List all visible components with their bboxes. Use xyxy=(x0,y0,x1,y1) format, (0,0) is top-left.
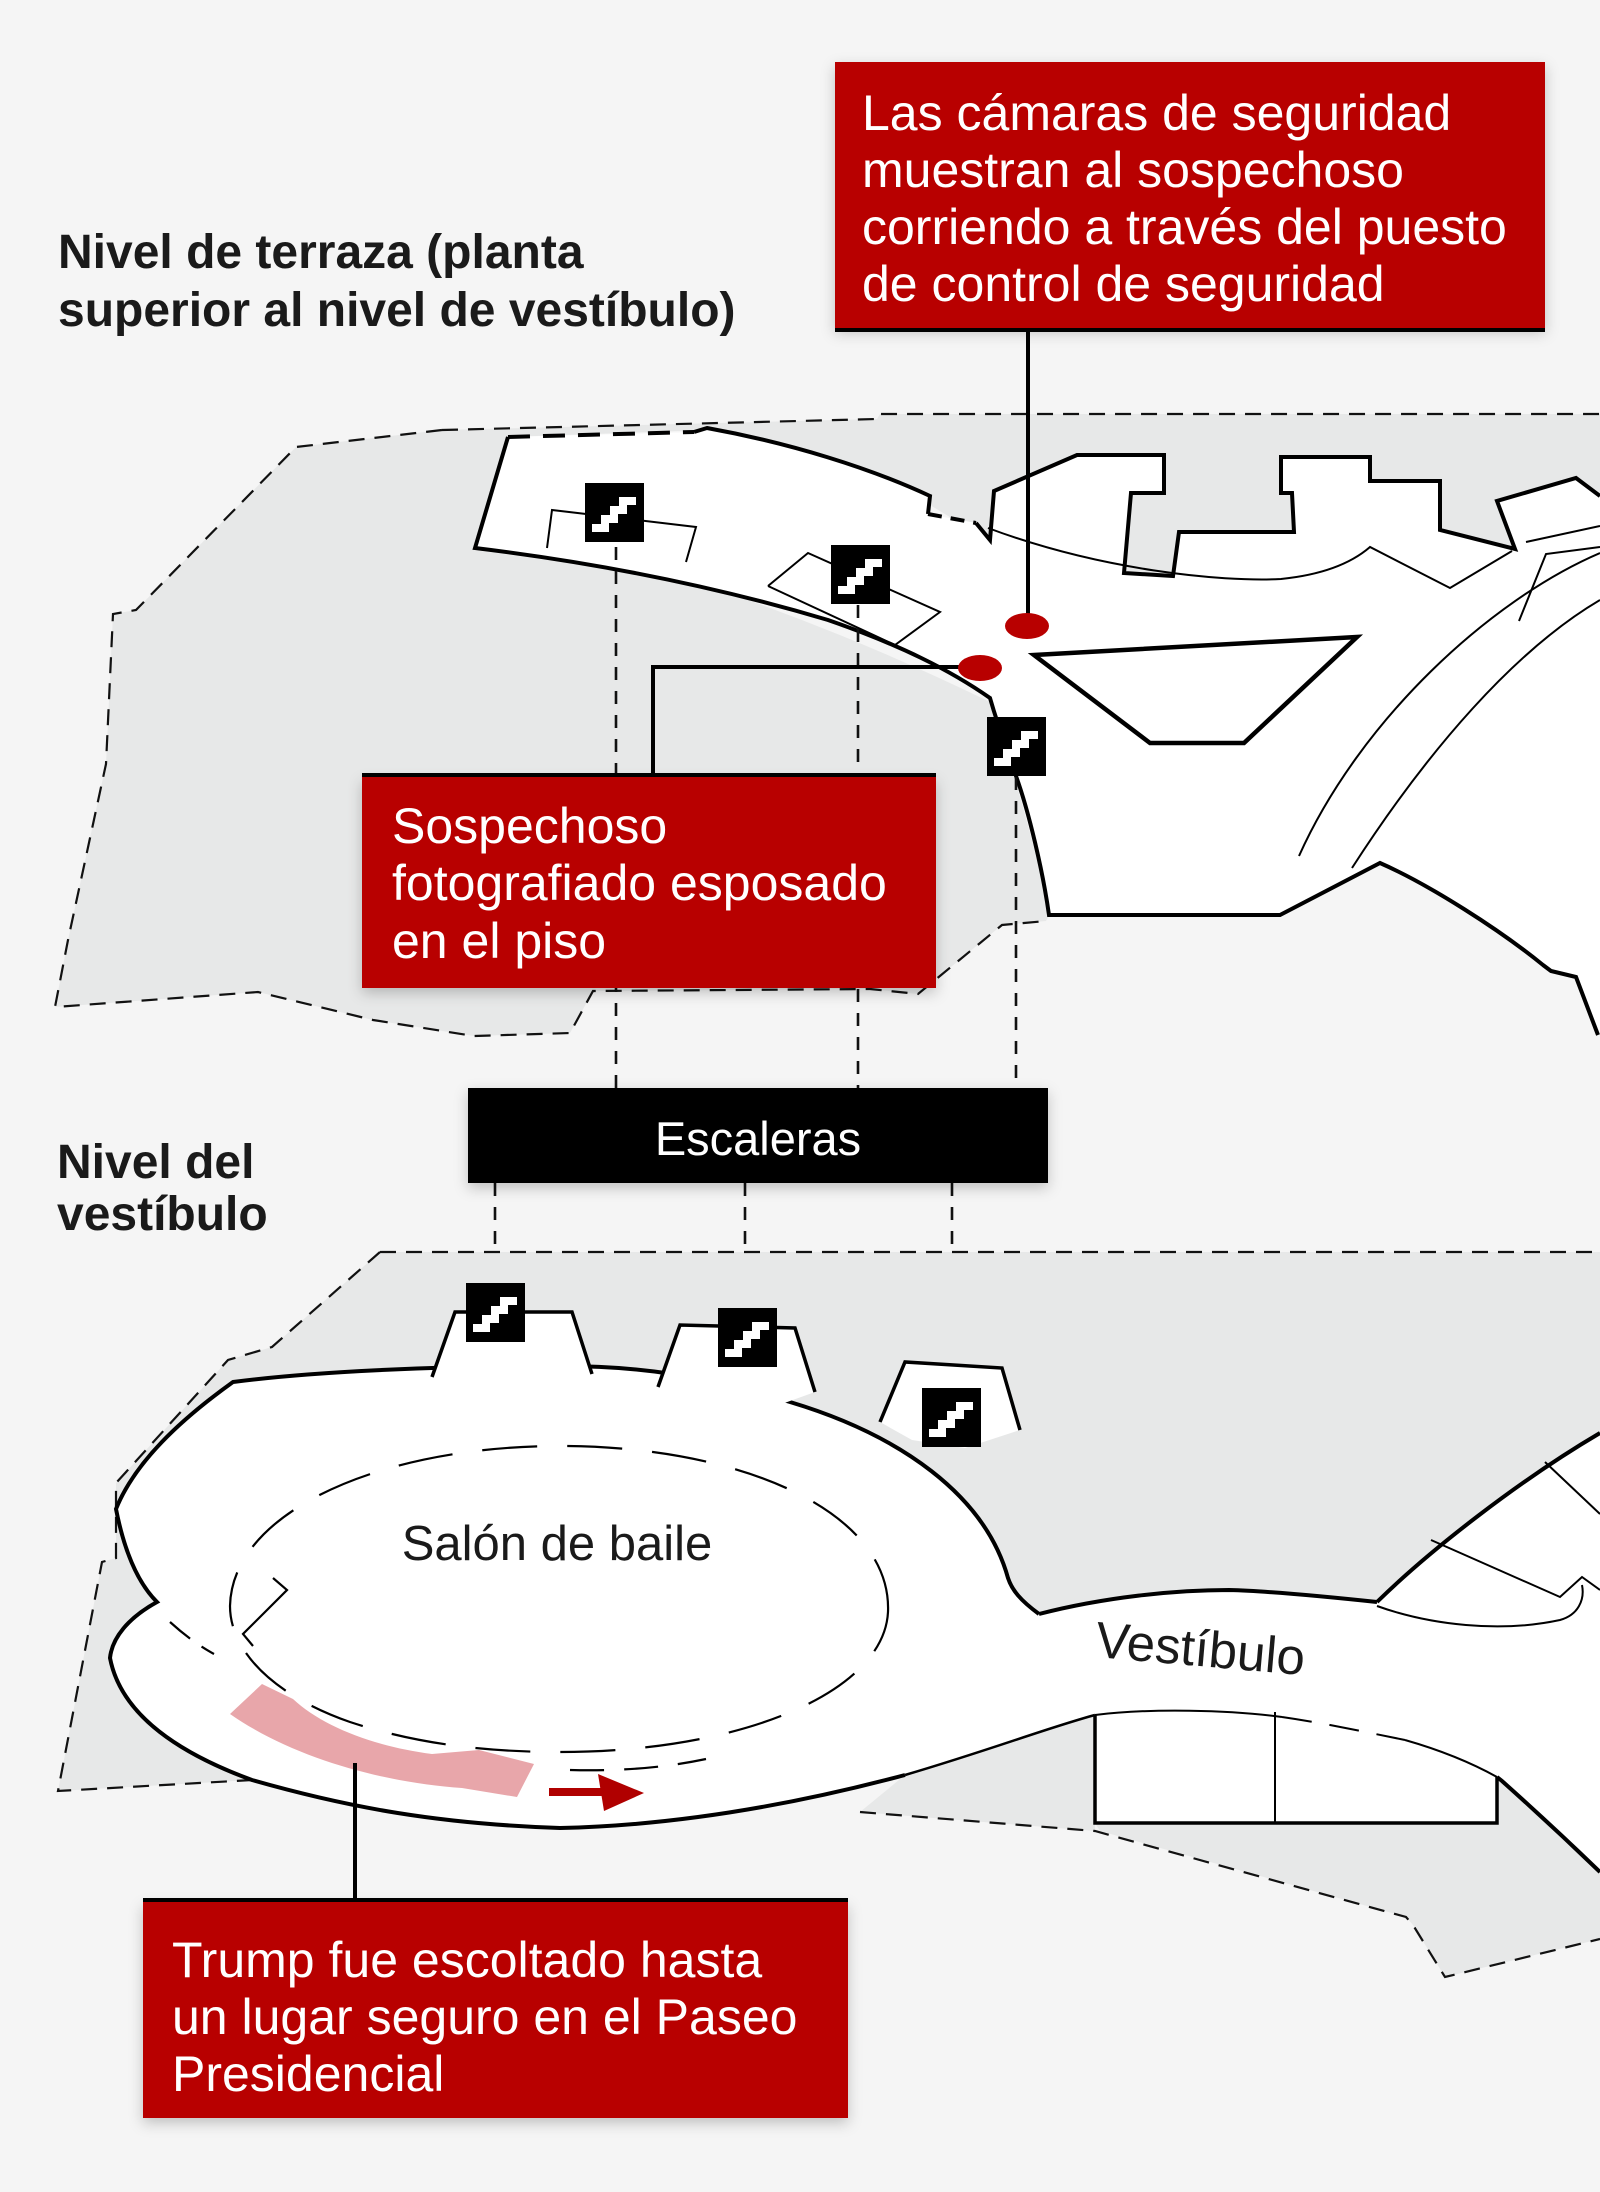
svg-text:Nivel del: Nivel del xyxy=(57,1136,254,1189)
svg-text:Las cámaras de seguridad: Las cámaras de seguridad xyxy=(862,85,1451,141)
svg-text:Presidencial: Presidencial xyxy=(172,2046,444,2102)
svg-text:en el piso: en el piso xyxy=(392,913,606,969)
svg-text:fotografiado esposado: fotografiado esposado xyxy=(392,855,887,911)
svg-text:Escaleras: Escaleras xyxy=(655,1112,861,1165)
svg-text:muestran al sospechoso: muestran al sospechoso xyxy=(862,142,1404,198)
svg-text:un lugar seguro en el Paseo: un lugar seguro en el Paseo xyxy=(172,1989,797,2045)
svg-text:vestíbulo: vestíbulo xyxy=(57,1188,268,1241)
svg-text:de control de seguridad: de control de seguridad xyxy=(862,256,1385,312)
svg-text:corriendo a través del puesto: corriendo a través del puesto xyxy=(862,199,1507,255)
svg-text:Salón de baile: Salón de baile xyxy=(402,1517,713,1571)
svg-text:Nivel de terraza (planta: Nivel de terraza (planta xyxy=(58,226,584,279)
svg-text:superior al nivel de vestíbulo: superior al nivel de vestíbulo) xyxy=(58,284,736,337)
svg-text:Trump fue escoltado hasta: Trump fue escoltado hasta xyxy=(172,1932,762,1988)
svg-text:Sospechoso: Sospechoso xyxy=(392,798,667,854)
